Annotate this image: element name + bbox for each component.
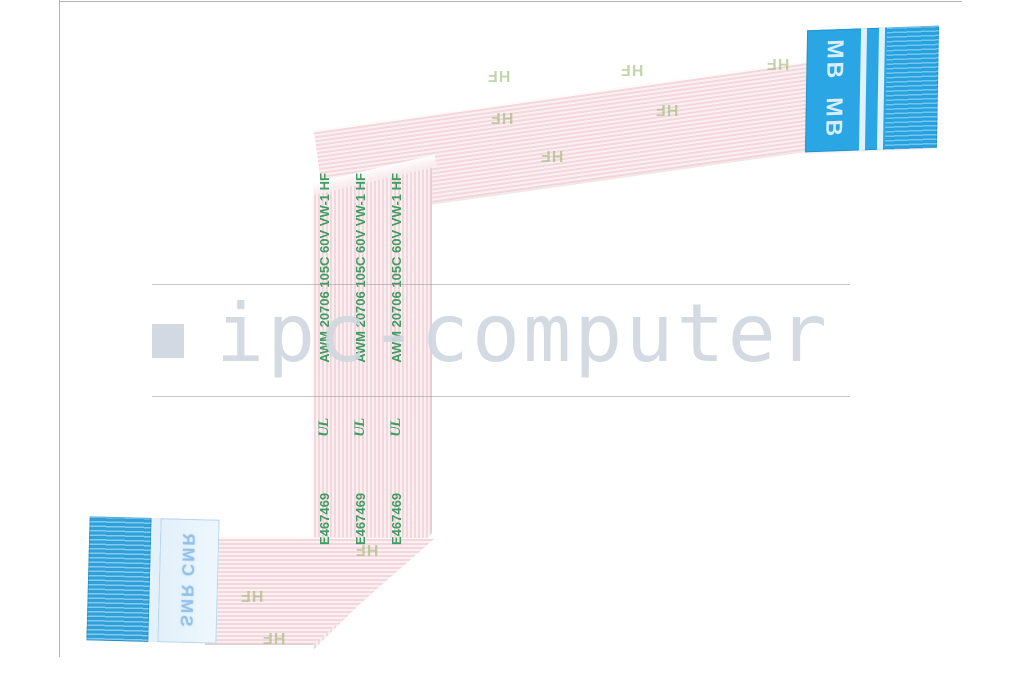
mb-label-text: MB	[824, 39, 849, 82]
watermark-brand-text: ipc-computer	[216, 294, 830, 374]
connector-bl-showthrough-text: SMR CMR	[175, 519, 198, 639]
hf-mark: HF	[766, 54, 789, 72]
connector-mb-label: MB MB	[823, 29, 849, 150]
ul-logo-icon: UL	[316, 419, 333, 437]
hf-mark: HF	[540, 146, 563, 164]
product-photo-canvas: E467469 UL AWM 20706 105C 60V VW-1 HF E4…	[0, 0, 1024, 680]
ul-logo-icon: UL	[352, 419, 369, 437]
hf-mark: HF	[355, 540, 378, 558]
photo-frame-top-line	[59, 1, 962, 2]
hf-mark: HF	[490, 108, 513, 126]
ul-cert-number: E467469	[389, 493, 404, 545]
hf-mark: HF	[262, 628, 285, 646]
mb-label-text: MB	[823, 97, 848, 140]
photo-frame-left-line	[59, 0, 60, 657]
ul-cert-number: E467469	[353, 493, 368, 545]
ul-logo-icon: UL	[388, 419, 405, 437]
ul-cert-number: E467469	[317, 493, 332, 545]
connector-mb-ribbed-area	[885, 26, 939, 150]
connector-mb-white-stripe	[877, 28, 885, 150]
connector-mb: MB MB	[805, 26, 939, 153]
hf-mark: HF	[655, 100, 678, 118]
connector-bottom-left: SMR CMR	[86, 516, 219, 643]
hf-mark: HF	[620, 60, 643, 78]
connector-bl-stiffener-panel: SMR CMR	[157, 518, 219, 644]
connector-bl-ribbed-area	[86, 516, 151, 642]
hf-mark: HF	[240, 586, 263, 604]
watermark-band-top-line	[152, 284, 850, 285]
watermark-square-icon	[152, 324, 184, 358]
connector-mb-white-stripe	[859, 28, 867, 150]
watermark-band-bottom-line	[152, 396, 850, 397]
hf-mark: HF	[487, 66, 510, 84]
